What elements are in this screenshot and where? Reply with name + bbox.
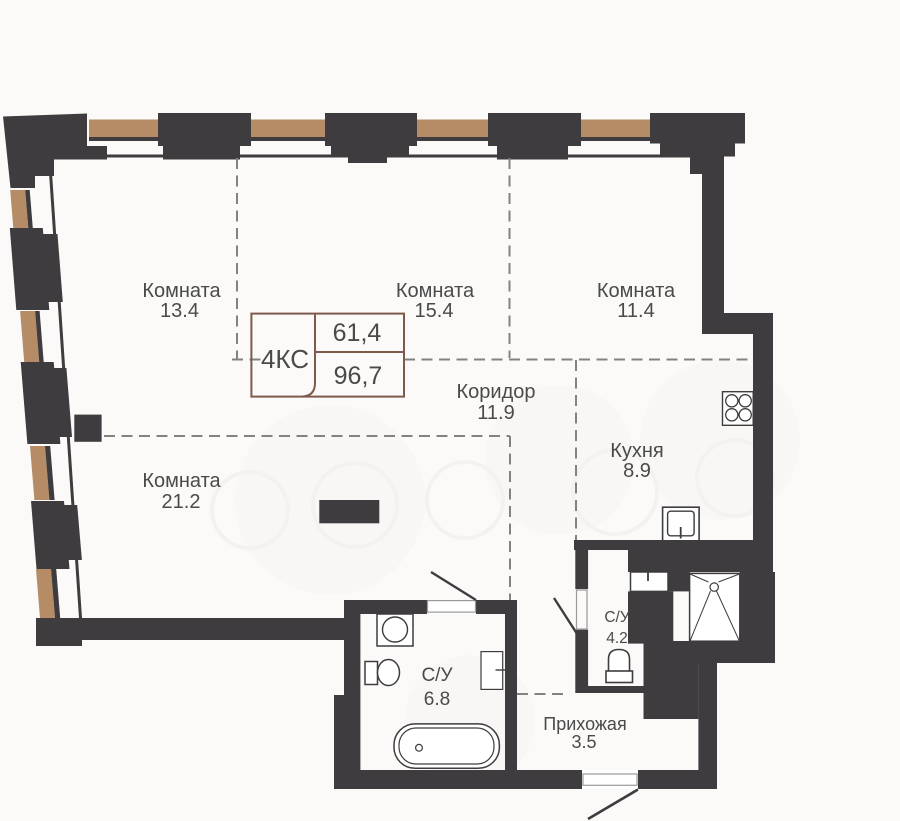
svg-text:Комната: Комната: [396, 280, 475, 302]
svg-text:Коридор: Коридор: [457, 381, 536, 403]
svg-text:Кухня: Кухня: [610, 440, 664, 462]
svg-text:11.4: 11.4: [617, 300, 654, 322]
svg-text:11.9: 11.9: [477, 402, 514, 424]
svg-text:21.2: 21.2: [162, 491, 201, 513]
svg-text:3.5: 3.5: [571, 732, 596, 752]
svg-text:Комната: Комната: [142, 280, 221, 302]
svg-text:Комната: Комната: [142, 470, 221, 492]
svg-text:8.9: 8.9: [623, 460, 651, 482]
svg-text:6.8: 6.8: [424, 689, 450, 710]
svg-text:96,7: 96,7: [334, 362, 383, 390]
svg-text:4КС: 4КС: [261, 344, 309, 374]
svg-text:4.2: 4.2: [606, 630, 628, 647]
svg-text:С/У: С/У: [604, 609, 630, 626]
svg-text:Прихожая: Прихожая: [543, 714, 626, 734]
svg-text:С/У: С/У: [421, 665, 453, 686]
svg-text:15.4: 15.4: [415, 300, 454, 322]
svg-text:Комната: Комната: [597, 280, 676, 302]
svg-text:61,4: 61,4: [333, 319, 382, 347]
svg-text:13.4: 13.4: [160, 300, 199, 322]
